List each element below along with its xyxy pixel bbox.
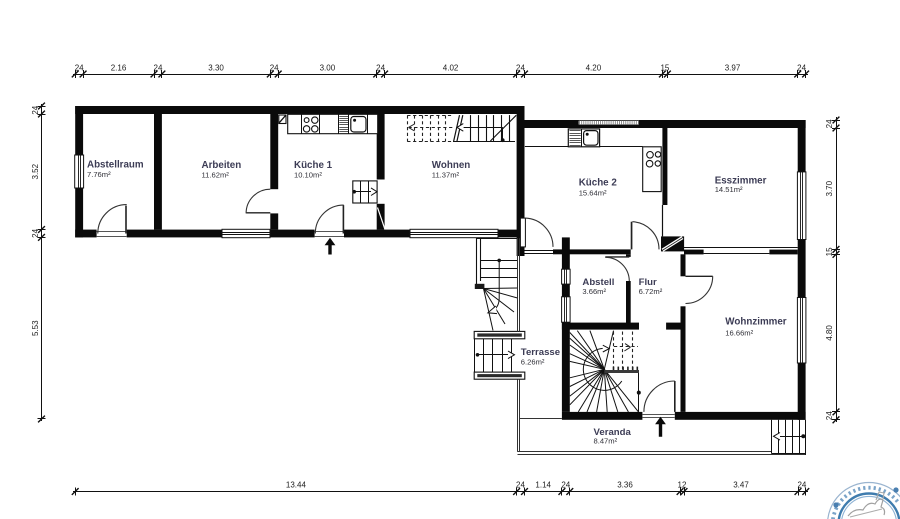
svg-text:4.20: 4.20 xyxy=(586,64,602,73)
svg-text:3.00: 3.00 xyxy=(320,64,336,73)
svg-text:24: 24 xyxy=(31,228,40,237)
svg-text:2.16: 2.16 xyxy=(111,64,127,73)
svg-text:3.47: 3.47 xyxy=(733,481,749,490)
svg-text:24: 24 xyxy=(825,411,834,420)
svg-text:1.14: 1.14 xyxy=(535,481,551,490)
svg-text:15: 15 xyxy=(825,247,834,256)
svg-text:4.80: 4.80 xyxy=(825,325,834,341)
svg-text:10.10m²: 10.10m² xyxy=(294,171,322,180)
svg-text:24: 24 xyxy=(561,481,570,490)
svg-text:24: 24 xyxy=(154,64,163,73)
svg-text:24: 24 xyxy=(825,119,834,128)
svg-text:7.76m²: 7.76m² xyxy=(87,170,111,179)
svg-text:8.47m²: 8.47m² xyxy=(594,437,618,446)
svg-text:24: 24 xyxy=(516,481,525,490)
svg-text:Küche 1: Küche 1 xyxy=(294,160,333,171)
svg-text:24: 24 xyxy=(797,64,806,73)
svg-text:3.66m²: 3.66m² xyxy=(582,287,606,296)
svg-text:4.02: 4.02 xyxy=(443,64,459,73)
svg-text:Abstellraum: Abstellraum xyxy=(87,160,144,171)
svg-text:12: 12 xyxy=(678,481,687,490)
svg-text:24: 24 xyxy=(31,105,40,114)
svg-text:15.64m²: 15.64m² xyxy=(579,189,607,198)
svg-text:3.52: 3.52 xyxy=(31,163,40,179)
svg-text:6.26m²: 6.26m² xyxy=(521,357,545,366)
svg-text:Arbeiten: Arbeiten xyxy=(202,160,242,171)
svg-text:24: 24 xyxy=(516,64,525,73)
svg-text:14.51m²: 14.51m² xyxy=(715,185,743,194)
svg-text:Wohnen: Wohnen xyxy=(432,160,470,171)
svg-text:Küche 2: Küche 2 xyxy=(579,178,618,189)
svg-text:16.66m²: 16.66m² xyxy=(725,329,753,338)
svg-text:3.36: 3.36 xyxy=(617,481,633,490)
svg-text:24: 24 xyxy=(270,64,279,73)
svg-text:24: 24 xyxy=(75,64,84,73)
svg-text:24: 24 xyxy=(376,64,385,73)
svg-text:Wohnzimmer: Wohnzimmer xyxy=(725,317,787,328)
svg-text:11.37m²: 11.37m² xyxy=(432,171,460,180)
svg-text:15: 15 xyxy=(660,64,669,73)
svg-text:24: 24 xyxy=(797,481,806,490)
svg-text:5.53: 5.53 xyxy=(31,320,40,336)
svg-text:3.70: 3.70 xyxy=(825,180,834,196)
svg-text:3.30: 3.30 xyxy=(208,64,224,73)
svg-text:11.62m²: 11.62m² xyxy=(202,171,230,180)
svg-text:3.97: 3.97 xyxy=(725,64,741,73)
svg-text:13.44: 13.44 xyxy=(286,481,307,490)
svg-text:6.72m²: 6.72m² xyxy=(639,287,663,296)
